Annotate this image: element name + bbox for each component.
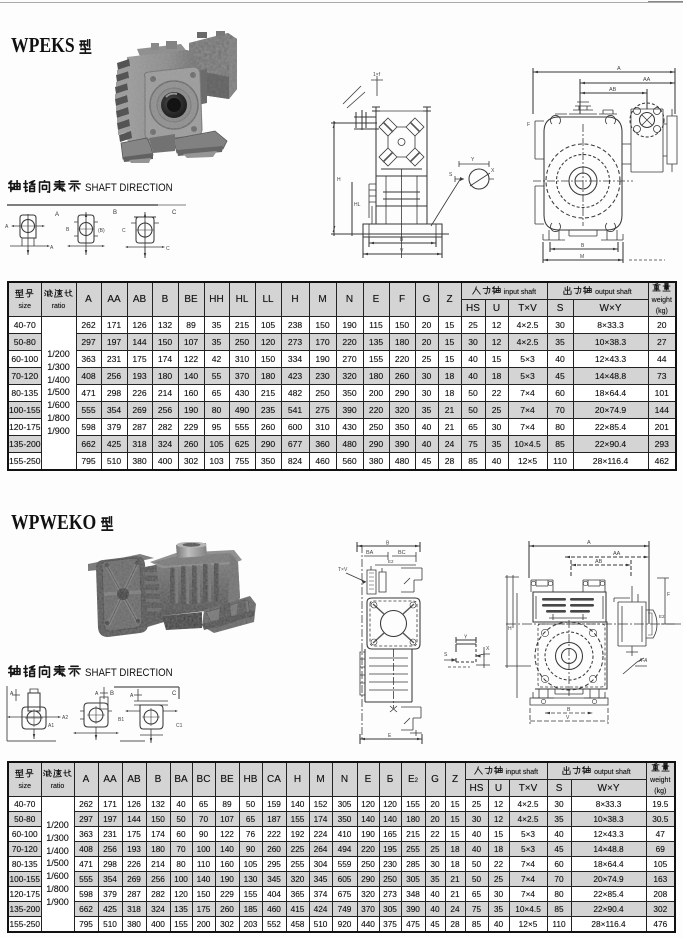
svg-text:B: B	[110, 691, 114, 697]
svg-text:B: B	[66, 227, 70, 233]
svg-text:B: B	[113, 210, 117, 216]
svg-text:V: V	[566, 715, 570, 721]
svg-text:B: B	[400, 237, 404, 243]
svg-text:AA: AA	[643, 77, 651, 83]
svg-text:A: A	[587, 540, 591, 546]
svg-text:B: B	[581, 243, 585, 249]
svg-text:S: S	[444, 652, 448, 658]
svg-text:A: A	[55, 212, 59, 218]
svg-text:X: X	[486, 646, 490, 652]
svg-text:E2: E2	[388, 559, 394, 564]
svg-text:C: C	[172, 691, 177, 697]
svg-text:S: S	[449, 172, 453, 178]
svg-text:(B): (B)	[98, 228, 105, 234]
svg-text:BA: BA	[366, 550, 374, 556]
svg-text:1×f: 1×f	[373, 72, 381, 78]
svg-text:C: C	[172, 210, 177, 216]
svg-text:V: V	[400, 248, 404, 254]
svg-text:A-A: A-A	[638, 658, 648, 664]
svg-text:A: A	[95, 691, 99, 697]
svg-text:F: F	[527, 122, 530, 128]
svg-text:C: C	[122, 228, 126, 234]
svg-text:M: M	[580, 254, 584, 260]
svg-text:E2: E2	[659, 614, 665, 619]
svg-text:A: A	[50, 245, 54, 251]
svg-text:B: B	[567, 707, 571, 713]
svg-text:H: H	[337, 177, 341, 183]
svg-text:A: A	[130, 693, 134, 699]
svg-text:C1: C1	[176, 723, 183, 729]
svg-text:F: F	[667, 592, 670, 598]
svg-text:T×V: T×V	[338, 567, 348, 573]
svg-text:H: H	[508, 626, 512, 632]
svg-text:HL: HL	[354, 202, 361, 208]
svg-text:Y: Y	[471, 157, 475, 163]
svg-text:C: C	[166, 246, 170, 252]
svg-text:AB: AB	[595, 559, 603, 565]
svg-text:AB: AB	[609, 87, 617, 93]
svg-text:B1: B1	[118, 717, 124, 723]
svg-text:AA: AA	[613, 551, 621, 557]
svg-text:A1: A1	[48, 723, 54, 729]
svg-text:A: A	[5, 224, 9, 230]
svg-text:X: X	[491, 168, 495, 174]
svg-text:A: A	[10, 691, 14, 697]
svg-text:E: E	[388, 733, 392, 739]
svg-text:A: A	[617, 66, 621, 72]
svg-text:BC: BC	[398, 550, 406, 556]
svg-text:A2: A2	[62, 715, 68, 721]
